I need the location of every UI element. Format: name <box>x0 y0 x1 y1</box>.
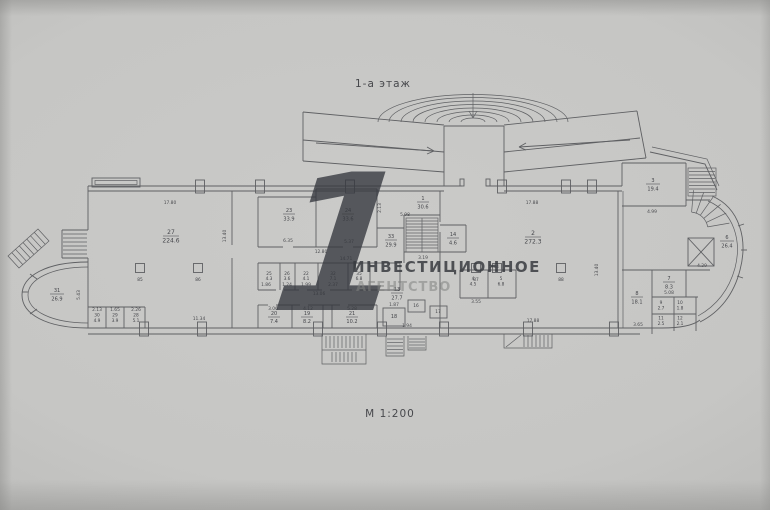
room-number: 5 <box>500 276 503 282</box>
room-area: 4.9 <box>94 318 101 324</box>
room-area: 2.5 <box>658 321 665 327</box>
room-area: 30.6 <box>417 205 428 211</box>
stair-bottom-right-ramp <box>504 334 552 348</box>
dim-label: 3.55 <box>471 299 481 305</box>
room-area: 3.9 <box>112 318 119 324</box>
room-number: 28 <box>133 313 139 319</box>
dim-label: 17.88 <box>526 200 539 206</box>
room-number: 11 <box>658 316 664 322</box>
room-number: 3 <box>651 178 654 184</box>
room-number: 12 <box>677 316 683 322</box>
dim-label: 5.08 <box>664 290 674 296</box>
dim-label: 11.34 <box>193 316 206 322</box>
room-number: 29 <box>112 313 118 319</box>
room-area: 8.3 <box>665 285 673 291</box>
room-area: 2.7 <box>658 306 665 312</box>
dim-label: 17.88 <box>527 318 540 324</box>
column-label: 85 <box>137 277 143 283</box>
room-number: 10 <box>677 300 683 306</box>
room-area: 19.4 <box>647 187 658 193</box>
dim-label: 2.13 <box>92 307 102 313</box>
room-area: 26.4 <box>721 244 732 250</box>
watermark-digit: 1 <box>264 150 420 340</box>
room-number: 7 <box>667 276 670 282</box>
elevator-shaft <box>688 238 714 266</box>
room-number: 1 <box>421 196 424 202</box>
dim-label: 1.86 <box>261 282 271 288</box>
watermark-agency-word: АГЕНТСТВО <box>356 280 451 295</box>
room-area: 4.6 <box>449 241 457 247</box>
room-area: 2.1 <box>677 321 684 327</box>
dim-label: 5.43 <box>76 290 82 300</box>
room-number: 31 <box>54 288 60 294</box>
room-number: 9 <box>660 300 663 306</box>
watermark-agency-name: ИНВЕСТИЦИОННОЕ <box>352 258 541 276</box>
room-area: 18.1 <box>631 300 642 306</box>
room-number: 8 <box>635 291 638 297</box>
room-number: 14 <box>450 232 456 238</box>
dim-label: 13.40 <box>594 264 600 277</box>
room-number: 6 <box>725 235 728 241</box>
room-number: 17 <box>435 309 441 315</box>
room-area: 1.8 <box>677 306 684 312</box>
column-label: 86 <box>195 277 201 283</box>
room-area: 272.3 <box>524 239 541 246</box>
dim-label: 13.40 <box>222 230 228 243</box>
room-area: 26.9 <box>51 297 62 303</box>
dim-label: 4.29 <box>697 263 707 269</box>
room-area: 224.6 <box>162 238 179 245</box>
column-label: 87 <box>473 277 479 283</box>
dim-label: 1.65 <box>110 307 120 313</box>
entrance-fan-steps <box>378 93 568 122</box>
column-label: 88 <box>558 277 564 283</box>
room-number: 27 <box>167 229 175 236</box>
floor-title: 1-а этаж <box>355 78 411 90</box>
scanned-floor-plan-photo: 27 224.6 2 272.3 23 33.9 24 33.6 1 30.6 … <box>0 0 770 510</box>
dim-label: 17.80 <box>164 200 177 206</box>
dim-label: 2.26 <box>131 307 141 313</box>
room-area: 6.8 <box>498 282 505 288</box>
scale-label: М 1:200 <box>365 408 415 420</box>
dim-label: 3.65 <box>633 322 643 328</box>
room-number: 30 <box>94 313 100 319</box>
room-area: 5.1 <box>133 318 140 324</box>
room-number: 16 <box>413 303 419 309</box>
stair-right-upper <box>688 168 716 196</box>
dim-label: 1.94 <box>402 323 412 329</box>
room-number: 2 <box>531 230 535 237</box>
dim-label: 4.99 <box>647 209 657 215</box>
